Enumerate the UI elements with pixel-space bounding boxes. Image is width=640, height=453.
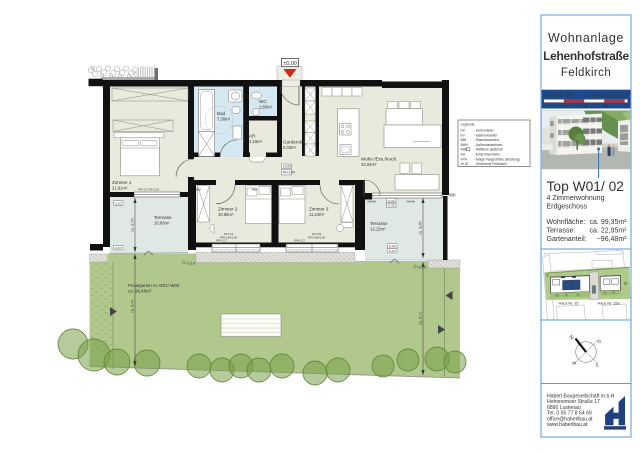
svg-text:RH 2,54: RH 2,54: [283, 171, 295, 175]
svg-text:Feldkirch: Feldkirch: [561, 67, 611, 79]
svg-text:33,04m²: 33,04m²: [361, 162, 377, 167]
svg-text:Zimmer 1: Zimmer 1: [112, 180, 132, 185]
svg-text:10,83m²: 10,83m²: [154, 221, 170, 226]
svg-text:- Raffstore elektrisch: - Raffstore elektrisch: [474, 148, 503, 152]
svg-text:-0,07: -0,07: [115, 246, 122, 250]
svg-text:ca. 22,95m²: ca. 22,95m²: [590, 228, 628, 235]
svg-text:12,12m²: 12,12m²: [370, 227, 386, 232]
svg-text:Zimmer 2: Zimmer 2: [218, 207, 238, 212]
svg-text:Raff: Raff: [461, 148, 467, 152]
svg-text:Wohnanlage: Wohnanlage: [548, 31, 624, 45]
svg-text:21,91m²: 21,91m²: [112, 186, 128, 191]
svg-text:AWH⊕: AWH⊕: [367, 200, 376, 204]
svg-text:Terrasse:: Terrasse:: [547, 228, 576, 235]
svg-text:Zimmer 3: Zimmer 3: [309, 207, 329, 212]
svg-text:FPH 0,17 RH 2,54: FPH 0,17 RH 2,54: [138, 188, 160, 192]
svg-text:ca. 96,48m²: ca. 96,48m²: [128, 289, 152, 294]
svg-text:7,30m²: 7,30m²: [217, 117, 231, 122]
svg-text:±0.00: ±0.00: [283, 61, 296, 67]
svg-text:-0,10: -0,10: [186, 261, 196, 266]
svg-text:- Waschmaschine: - Waschmaschine: [474, 138, 499, 142]
svg-text:0: 0: [544, 104, 546, 108]
svg-text:WC: WC: [259, 99, 267, 104]
svg-text:Maßstab: 1:75: Maßstab: 1:75: [545, 93, 575, 98]
svg-text:-0,02: -0,02: [388, 199, 395, 203]
svg-text:www.haberlbau.at: www.haberlbau.at: [547, 422, 588, 428]
svg-text:3m: 3m: [603, 104, 608, 108]
svg-text:ca. 5,70: ca. 5,70: [131, 299, 135, 313]
svg-text:~96,48m²: ~96,48m²: [597, 236, 627, 243]
svg-text:HABERL BAU: HABERL BAU: [606, 427, 621, 430]
svg-text:Terrasse: Terrasse: [154, 215, 172, 220]
svg-text:Terrasse: Terrasse: [370, 221, 388, 226]
svg-text:AR: AR: [249, 134, 256, 139]
svg-text:-0,10: -0,10: [417, 265, 427, 270]
svg-text:10,68m²: 10,68m²: [218, 212, 234, 217]
svg-text:Erdgeschoss: Erdgeschoss: [547, 204, 588, 211]
svg-text:11,24m²: 11,24m²: [309, 212, 325, 217]
svg-text:FPH 0,86+1,86: FPH 0,86+1,86: [308, 237, 325, 240]
svg-text:Top W01/ 02: Top W01/ 02: [547, 179, 624, 194]
svg-text:FPH 0,17: FPH 0,17: [216, 239, 228, 243]
svg-text:2,16m²: 2,16m²: [249, 139, 263, 144]
svg-text:5,03m²: 5,03m²: [283, 145, 297, 150]
svg-text:Legende:: Legende:: [461, 123, 476, 127]
svg-text:Wohn./Ess./Koch.: Wohn./Ess./Koch.: [361, 157, 397, 162]
svg-text:AWH: AWH: [461, 143, 469, 147]
svg-text:Raff: Raff: [252, 188, 257, 192]
svg-text:AWH⊕: AWH⊕: [406, 200, 415, 204]
svg-text:- Elektroverteiler: - Elektroverteiler: [474, 133, 498, 137]
svg-text:- Höhenkote Fußboden: - Höhenkote Fußboden: [474, 162, 507, 166]
svg-text:4 Zimmerwohnung: 4 Zimmerwohnung: [547, 195, 605, 202]
svg-text:ca. 2,70: ca. 2,70: [131, 218, 135, 232]
svg-text:Bad: Bad: [217, 111, 226, 116]
svg-text:ca. 99,35m²: ca. 99,35m²: [590, 219, 628, 226]
svg-text:-0,02: -0,02: [389, 244, 396, 248]
svg-text:- fertige Parapethöhe (Brüstun: - fertige Parapethöhe (Brüstung): [474, 157, 520, 161]
svg-text:±0,00: ±0,00: [283, 165, 291, 169]
svg-text:ca. 5,17: ca. 5,17: [419, 311, 423, 325]
svg-text:FPH: FPH: [461, 157, 468, 161]
svg-text:1m: 1m: [562, 104, 567, 108]
svg-text:- lichte Raumhöhe: - lichte Raumhöhe: [474, 153, 500, 157]
svg-text:1,60m²: 1,60m²: [259, 105, 273, 110]
svg-text:Lehenhofstraße: Lehenhofstraße: [543, 49, 629, 63]
svg-text:Haus Nr. 15: Haus Nr. 15: [559, 301, 579, 305]
svg-text:-0,02: -0,02: [115, 201, 122, 205]
svg-text:Stand: Sept. 2025: Stand: Sept. 2025: [591, 93, 628, 98]
svg-text:- Außenwasserhahn: - Außenwasserhahn: [474, 143, 503, 147]
svg-text:- Heizverteiler: - Heizverteiler: [474, 129, 495, 133]
svg-text:Wohnfläche:: Wohnfläche:: [547, 219, 586, 226]
svg-text:2m: 2m: [583, 104, 588, 108]
svg-text:S: S: [596, 363, 599, 368]
svg-text:O: O: [598, 339, 602, 344]
svg-text:Raff: Raff: [196, 188, 201, 192]
svg-text:-0,06: -0,06: [388, 204, 395, 208]
svg-text:Haus Nr. 15a: Haus Nr. 15a: [598, 301, 621, 305]
svg-text:WM: WM: [461, 138, 467, 142]
svg-text:Garderobe: Garderobe: [283, 140, 305, 145]
svg-text:RH: RH: [461, 153, 466, 157]
svg-text:Gartenanteil:: Gartenanteil:: [547, 236, 587, 243]
svg-text:-0,07: -0,07: [389, 249, 396, 253]
svg-text:Privatgarten zu W01/ W02: Privatgarten zu W01/ W02: [128, 283, 180, 288]
svg-text:ca. 3,05: ca. 3,05: [419, 221, 423, 235]
svg-text:FPH 0,17: FPH 0,17: [294, 239, 306, 243]
svg-text:±0,00: ±0,00: [461, 162, 469, 166]
